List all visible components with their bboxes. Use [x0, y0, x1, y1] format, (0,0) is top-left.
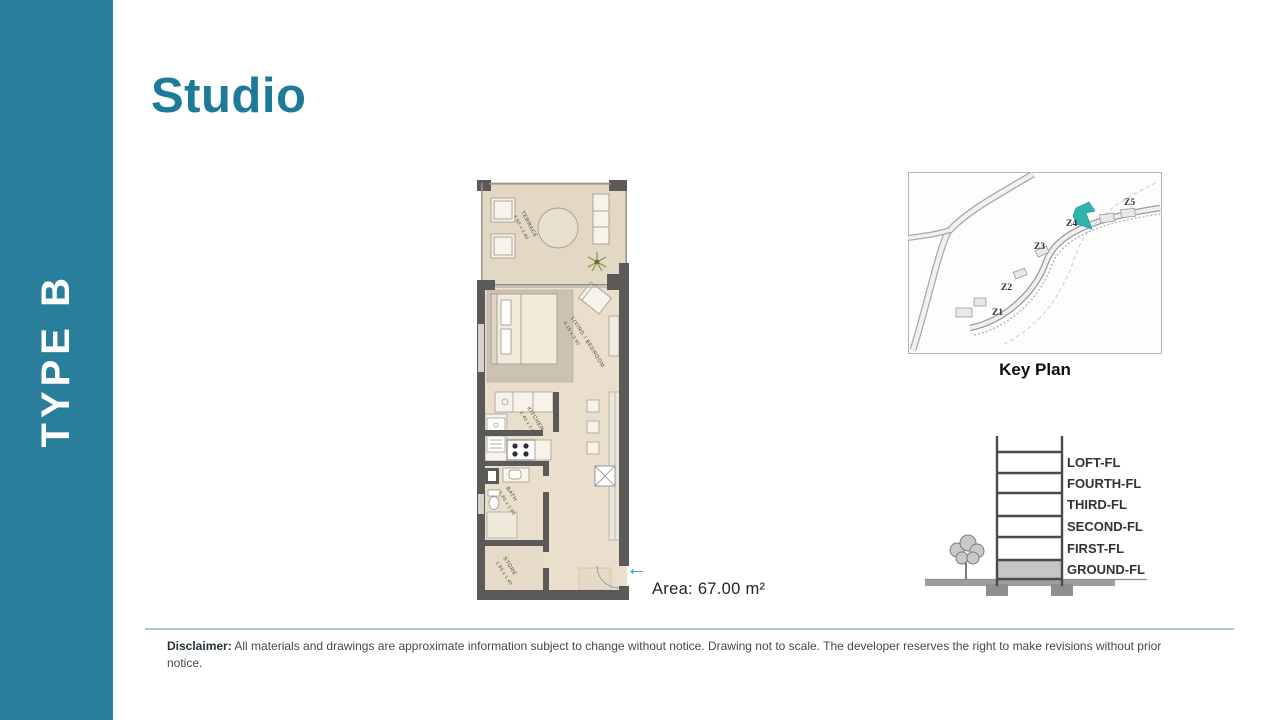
type-sidebar: TYPE B — [0, 0, 113, 720]
floor-label-ground: GROUND-FL — [1067, 562, 1145, 577]
entry-arrow-icon: ← — [626, 557, 647, 581]
ground-band — [925, 580, 1115, 586]
keyplan-map: Z1 Z2 Z3 Z4 Z5 — [908, 172, 1162, 354]
tree-icon — [950, 535, 984, 582]
floor-label-second: SECOND-FL — [1067, 519, 1143, 534]
building-section-diagram: LOFT-FL FOURTH-FL THIRD-FL SECOND-FL FIR… — [915, 432, 1165, 602]
keyplan-caption: Key Plan — [908, 360, 1162, 380]
unit-type-label: TYPE B — [34, 273, 79, 447]
zone-label-z2: Z2 — [1001, 283, 1012, 293]
footer-divider — [145, 628, 1234, 630]
disclaimer-body: All materials and drawings are approxima… — [167, 639, 1161, 670]
disclaimer-label: Disclaimer: — [167, 639, 232, 653]
floor-label-loft: LOFT-FL — [1067, 455, 1120, 470]
shaft-box — [595, 466, 615, 486]
entry-mat — [579, 568, 611, 590]
stove — [507, 440, 535, 460]
terrace-sofa — [593, 194, 609, 244]
bed — [491, 294, 557, 364]
console-table — [609, 316, 619, 356]
floor-label-third: THIRD-FL — [1067, 497, 1127, 512]
disclaimer-text: Disclaimer: All materials and drawings a… — [167, 638, 1193, 673]
zone-label-z1: Z1 — [992, 308, 1003, 318]
bar-stools — [587, 400, 599, 454]
floorplan-drawing: TERRACE 4.50 x 2.80 LIVING / BEDROOM 4.1… — [475, 178, 633, 603]
zone-label-z3: Z3 — [1034, 242, 1045, 252]
zone-label-z5: Z5 — [1124, 198, 1135, 208]
area-label: Area: 67.00 m² — [652, 580, 765, 599]
page-title: Studio — [151, 68, 306, 124]
zone-label-z4: Z4 — [1066, 219, 1077, 229]
kitchen-cabinet — [535, 440, 551, 460]
floor-label-fourth: FOURTH-FL — [1067, 476, 1141, 491]
terrace-table — [538, 208, 578, 248]
floor-label-first: FIRST-FL — [1067, 541, 1124, 556]
ground-floor-fill — [997, 560, 1062, 579]
